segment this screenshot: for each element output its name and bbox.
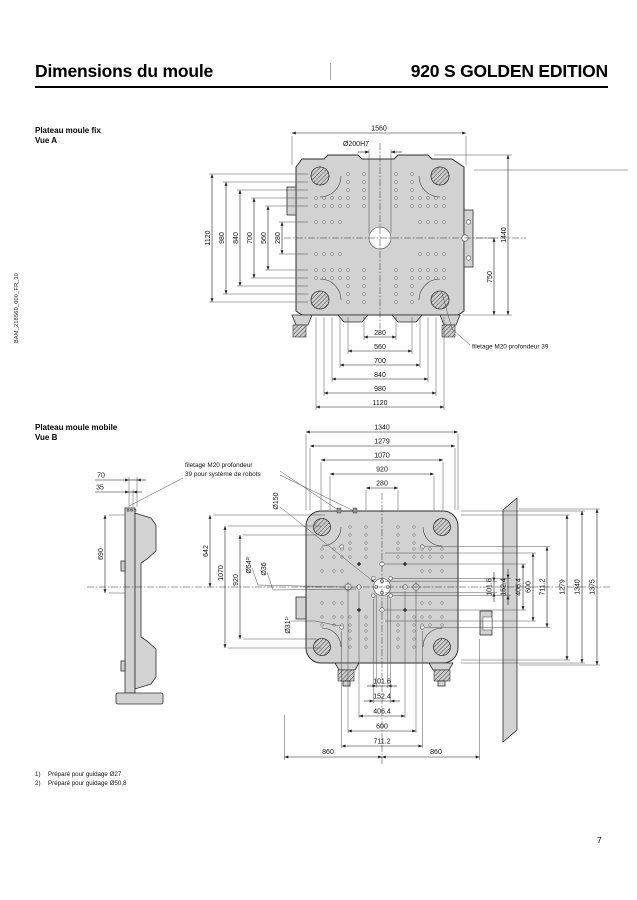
- footnotes: 1) Préparé pour guidage Ø27 2) Préparé p…: [35, 771, 126, 789]
- header-rule: [35, 86, 608, 88]
- dim-label: 600: [376, 724, 388, 731]
- header-separator: [330, 63, 331, 80]
- dim-label: 840: [374, 372, 386, 379]
- foot-right: [440, 315, 460, 325]
- dim-label: 1070: [374, 453, 390, 460]
- dim-label: 101.6: [487, 578, 494, 596]
- dims-a-bottom: 280 560 700 840 980 1120: [316, 317, 444, 410]
- footnote-text: Préparé pour guidage Ø27: [48, 771, 121, 780]
- hole-label: Ø31¹⁾: [284, 616, 292, 634]
- page-title: Dimensions du moule: [35, 61, 213, 82]
- dim-label: 101.6: [373, 679, 391, 686]
- dim-label: 1560: [371, 126, 387, 133]
- footnote-1: 1) Préparé pour guidage Ø27: [35, 771, 126, 780]
- mount-pad-right: [434, 670, 450, 681]
- dim-label: 1375: [590, 579, 597, 595]
- dim-label: 1340: [374, 425, 390, 432]
- annotation-text: filetage M20 profondeur 39: [472, 344, 549, 351]
- section-label-view-a: Plateau moule fix Vue A: [35, 126, 101, 147]
- platen-b-side-view: [116, 508, 163, 704]
- robot-thread-hole: [353, 508, 357, 513]
- hole-label: Ø150: [273, 492, 280, 509]
- foot-left: [292, 315, 312, 325]
- dim-label: 70: [97, 473, 105, 480]
- drawing-a-view: Vue A: [35, 136, 101, 146]
- hole-label: Ø36: [261, 562, 268, 575]
- dim-label: 980: [219, 232, 226, 244]
- dim-label: 920: [233, 574, 240, 586]
- side-view-foot: [116, 693, 163, 704]
- dim-label: 560: [374, 344, 386, 351]
- annotation-text: filetage M20 profondeur: [185, 462, 253, 469]
- dim-label: 750: [487, 271, 494, 283]
- page: Dimensions du moule 920 S GOLDEN EDITION…: [0, 0, 637, 900]
- dim-label: 1120: [205, 230, 212, 245]
- foot-right: [429, 663, 453, 670]
- dim-label: 1440: [501, 227, 508, 243]
- drawing-b: 70 35 690 filetage M20 profondeur 39 pou…: [25, 415, 625, 785]
- dim-label: 152.4: [501, 578, 508, 596]
- center-hole-label: Ø200H7: [343, 141, 369, 148]
- dim-label: 280: [275, 232, 282, 244]
- drawing-a-title: Plateau moule fix: [35, 126, 101, 136]
- foot-left: [335, 663, 359, 670]
- document-code: BAM_218560_000_FR_10: [14, 273, 20, 343]
- footnote-2: 2) Préparé pour guidage Ø50,8: [35, 780, 126, 789]
- dim-label: 152.4: [373, 694, 391, 701]
- dim-label: 700: [374, 358, 386, 365]
- dim-label: 711.2: [374, 739, 391, 746]
- dim-label: 560: [261, 232, 268, 244]
- product-title: 920 S GOLDEN EDITION: [411, 61, 608, 82]
- dim-label: 35: [96, 485, 104, 492]
- dim-label: 860: [430, 749, 442, 756]
- drawing-a: 1560 Ø200H7 1120 980 840 700 560: [190, 115, 630, 415]
- mount-pad-left: [293, 325, 306, 337]
- dim-label: 406.4: [373, 709, 391, 716]
- hole-label: Ø54²⁾: [245, 556, 253, 574]
- page-number: 7: [597, 835, 602, 845]
- robot-thread-hole: [337, 508, 341, 513]
- dim-label: 690: [98, 548, 105, 560]
- dim-label: 642: [203, 545, 210, 557]
- dim-label: 1340: [575, 579, 582, 595]
- dim-label: 840: [233, 232, 240, 244]
- dim-label: 406.4: [516, 578, 523, 596]
- footnote-marker: 1): [35, 771, 48, 780]
- footnote-marker: 2): [35, 780, 48, 789]
- dim-label: 1279: [560, 579, 567, 595]
- annotation-b: filetage M20 profondeur 39 pour système …: [129, 462, 354, 511]
- mount-pad-left: [338, 670, 354, 681]
- dim-label: 980: [374, 386, 386, 393]
- dim-label: 1120: [372, 400, 387, 407]
- dim-label: 700: [247, 232, 254, 244]
- frame-column: [503, 498, 517, 742]
- clip-right: [480, 611, 492, 635]
- dim-label: 920: [376, 467, 388, 474]
- dim-label: 1070: [218, 565, 225, 581]
- clip-left: [296, 597, 307, 619]
- annotation-text: 39 pour système de robots: [185, 471, 261, 478]
- footnote-text: Préparé pour guidage Ø50,8: [48, 780, 126, 789]
- dim-label: 1279: [374, 439, 390, 446]
- dim-label: 860: [322, 749, 334, 756]
- dim-label: 280: [376, 481, 388, 488]
- side-lug-left: [287, 187, 296, 215]
- dim-label: 600: [526, 581, 533, 593]
- dim-label: 280: [374, 330, 386, 337]
- dim-label: 711.2: [540, 578, 547, 595]
